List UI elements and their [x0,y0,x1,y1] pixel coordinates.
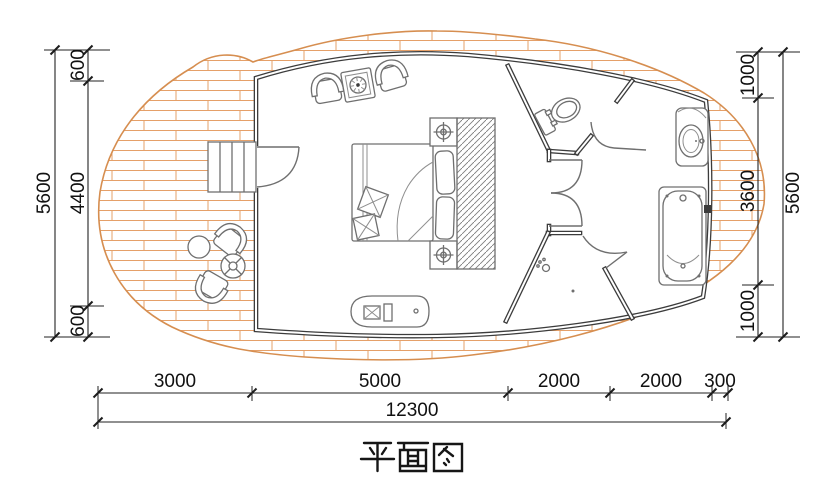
outdoor-parasol-table [221,254,245,278]
bed [352,144,455,241]
dim-label: 3000 [154,371,196,392]
dim-label: 2000 [640,371,682,392]
drawing-title: 平面图 [361,440,462,473]
wall-niche [704,205,711,213]
wardrobe [457,118,495,269]
floor-plan-canvas: 600 4400 600 5600 1000 3600 1000 5600 [0,0,837,496]
dimension-bottom: 3000 5000 2000 2000 300 12300 [94,371,736,429]
media-console [351,296,429,327]
dim-label: 2000 [538,371,580,392]
dimension-right: 1000 3600 1000 5600 [736,48,804,342]
page-title: 平面图 [368,440,458,473]
entrance-stairs [208,142,256,192]
dim-label: 1000 [738,290,759,332]
dim-label-total: 5600 [34,172,55,214]
nightstand-top [430,118,457,146]
decor-pillow-2 [353,214,379,240]
dimension-left: 600 4400 600 5600 [34,46,110,342]
head-pillow-1 [435,151,455,195]
dim-label: 4400 [68,172,89,214]
dim-label: 5000 [359,371,401,392]
dim-label-total: 5600 [783,172,804,214]
dim-label: 300 [704,371,736,392]
stove-table [341,68,376,103]
outdoor-side-table [188,236,210,258]
dim-label-total: 12300 [386,400,439,421]
vanity-sink [676,108,708,166]
nightstand-bottom [430,241,457,269]
dim-label: 1000 [738,54,759,96]
dim-label: 600 [68,49,89,81]
dim-label: 600 [68,305,89,337]
bathtub [659,187,711,285]
head-pillow-2 [435,197,454,240]
dim-label: 3600 [738,170,759,212]
